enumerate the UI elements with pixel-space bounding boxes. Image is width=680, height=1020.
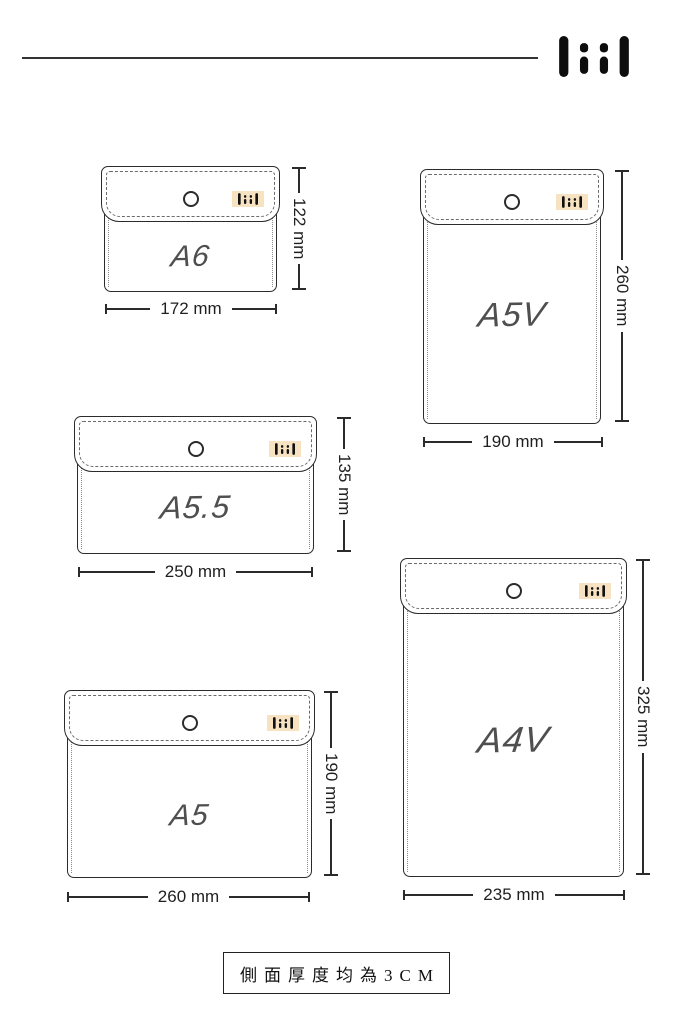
pouch-a5-5: A5.5 [77,417,314,554]
pouch-flap [101,166,280,222]
height-dimension-label: 325 mm [633,681,653,752]
dimension-line [343,419,345,449]
height-dimension: 122 mm [291,167,307,290]
width-dimension-label: 235 mm [473,885,554,905]
pouch-flap [400,558,627,614]
snap-button-icon [188,441,204,457]
width-dimension: 235 mm [403,887,625,903]
dimension-line [229,896,308,898]
dimension-tick [636,873,650,875]
brand-fabric-label [269,441,301,457]
brand-fabric-label [556,194,588,210]
width-dimension: 172 mm [105,301,277,317]
height-dimension-label: 190 mm [321,748,341,819]
height-dimension: 135 mm [336,417,352,552]
dimension-tick [615,420,629,422]
dimension-line [554,441,601,443]
thickness-note-text: 側面厚度均為3CM [233,961,440,986]
brand-fabric-label [267,715,299,731]
pouch-flap [64,690,315,746]
dimension-line [232,308,275,310]
pouch-size-name: A5 [66,797,314,835]
pouch-a6: A6 [104,167,277,292]
pouch-size-name: A4V [401,717,626,763]
liil-logo-icon [562,196,582,208]
dimension-line [298,264,300,288]
pouch-a5: A5 [67,691,312,878]
height-dimension-label: 122 mm [289,193,309,264]
width-dimension-label: 190 mm [472,432,553,452]
dimension-line [330,819,332,874]
dimension-line [621,332,623,420]
dimension-line [425,441,472,443]
brand-fabric-label [232,191,264,207]
liil-logo-icon [585,585,605,597]
dimension-line [642,561,644,681]
size-chart-page: A6 122 mm 172 mm [0,0,680,1020]
pouch-size-name: A5.5 [75,487,315,528]
dimension-line [621,172,623,260]
pouch-flap [74,416,317,472]
dimension-line [330,693,332,748]
dimension-tick [275,304,277,314]
dimension-tick [337,550,351,552]
pouch-a5v: A5V [423,170,601,424]
liil-logo-icon [238,193,258,205]
snap-button-icon [182,715,198,731]
pouch-size-name: A6 [103,239,279,276]
width-dimension: 260 mm [67,889,310,905]
dimension-tick [292,288,306,290]
width-dimension: 190 mm [423,434,603,450]
dimension-line [555,894,623,896]
liil-logo-icon [275,443,295,455]
snap-button-icon [506,583,522,599]
dimension-line [343,520,345,550]
dimension-line [405,894,473,896]
width-dimension: 250 mm [78,564,313,580]
dimension-tick [308,892,310,902]
height-dimension: 190 mm [323,691,339,876]
width-dimension-label: 260 mm [148,887,229,907]
dimension-line [298,169,300,193]
dimension-tick [324,874,338,876]
width-dimension-label: 172 mm [150,299,231,319]
liil-logo-icon [273,717,293,729]
dimension-tick [623,890,625,900]
dimension-tick [601,437,603,447]
dimension-tick [311,567,313,577]
pouch-size-name: A5V [421,294,602,336]
height-dimension: 260 mm [614,170,630,422]
width-dimension-label: 250 mm [155,562,236,582]
snap-button-icon [504,194,520,210]
snap-button-icon [183,191,199,207]
thickness-note-box: 側面厚度均為3CM [223,952,450,994]
pouch-flap [420,169,604,225]
dimension-line [69,896,148,898]
dimension-line [642,753,644,873]
brand-fabric-label [579,583,611,599]
height-dimension-label: 260 mm [612,260,632,331]
dimension-line [107,308,150,310]
height-dimension: 325 mm [635,559,651,875]
header-divider-line [22,57,538,59]
dimension-line [80,571,155,573]
pouch-a4v: A4V [403,559,624,877]
dimension-line [236,571,311,573]
liil-logo-icon [559,36,629,77]
height-dimension-label: 135 mm [334,449,354,520]
